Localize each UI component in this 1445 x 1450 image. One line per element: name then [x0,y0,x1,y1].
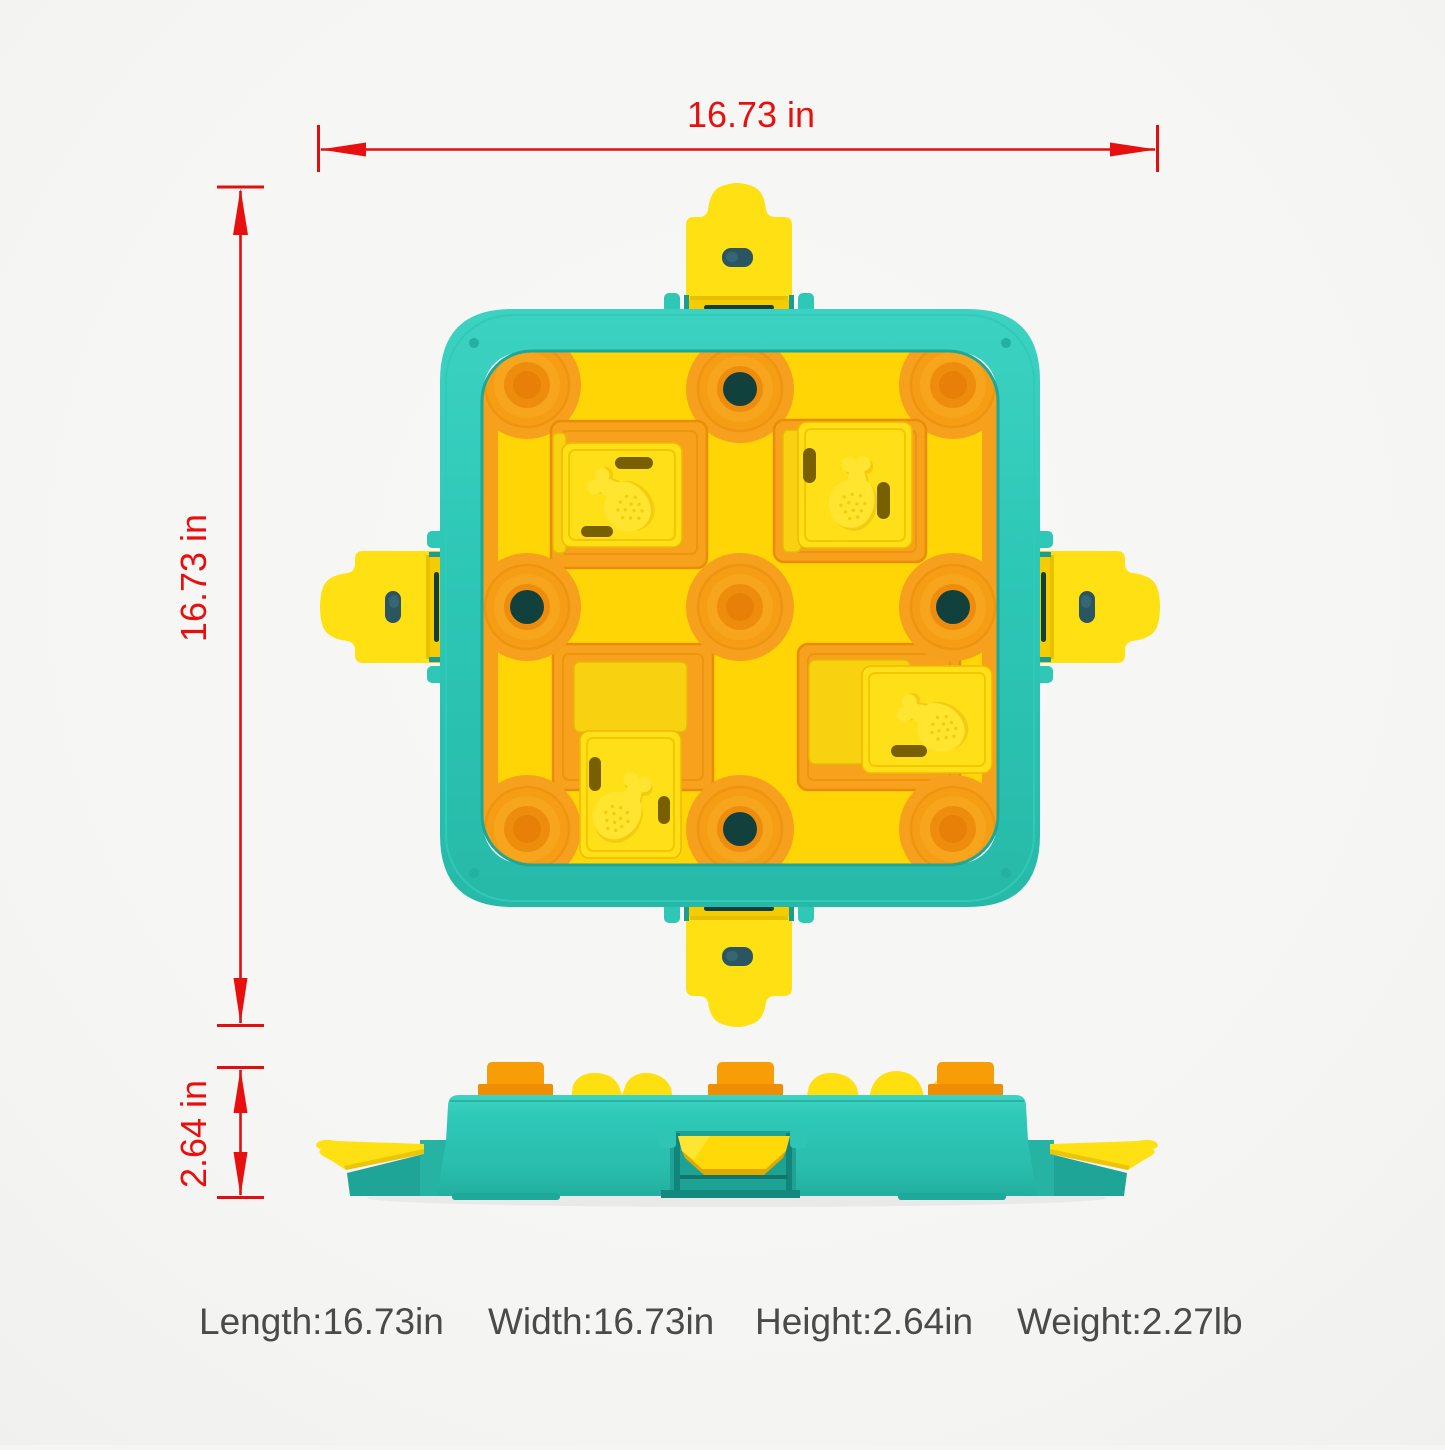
svg-text:2.64 in: 2.64 in [173,1080,214,1188]
svg-text:Height:2.64in: Height:2.64in [755,1301,973,1342]
svg-text:Length:16.73in: Length:16.73in [199,1301,444,1342]
svg-text:16.73 in: 16.73 in [687,94,815,135]
svg-text:Width:16.73in: Width:16.73in [488,1301,714,1342]
svg-text:16.73 in: 16.73 in [173,514,214,642]
svg-text:Weight:2.27lb: Weight:2.27lb [1017,1301,1243,1342]
